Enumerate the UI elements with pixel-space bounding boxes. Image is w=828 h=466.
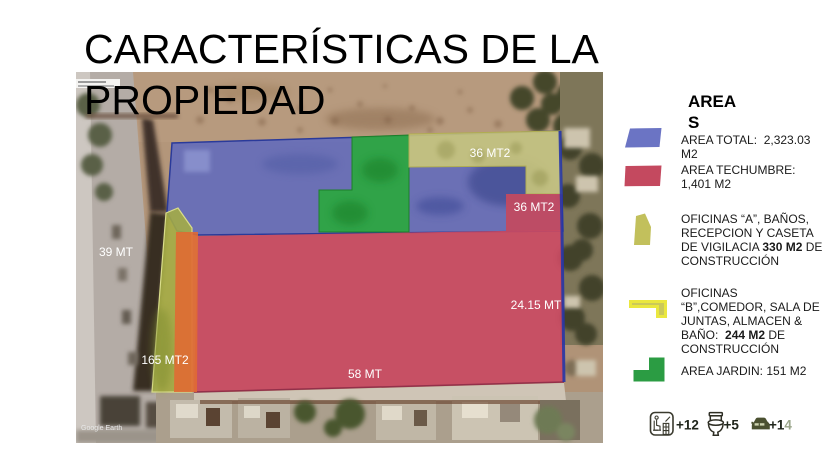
svg-text:36 MT2: 36 MT2 bbox=[514, 200, 555, 214]
svg-text:+12: +12 bbox=[676, 417, 699, 432]
svg-text:58 MT: 58 MT bbox=[348, 367, 383, 381]
svg-text:39 MT: 39 MT bbox=[99, 245, 134, 259]
svg-text:Google Earth: Google Earth bbox=[81, 425, 122, 432]
svg-text:24.15 MT: 24.15 MT bbox=[511, 298, 562, 312]
svg-text:+14: +14 bbox=[769, 417, 792, 432]
svg-text:+5: +5 bbox=[724, 418, 740, 433]
svg-text:36 MT2: 36 MT2 bbox=[470, 146, 511, 160]
svg-text:165 MT2: 165 MT2 bbox=[141, 353, 189, 367]
